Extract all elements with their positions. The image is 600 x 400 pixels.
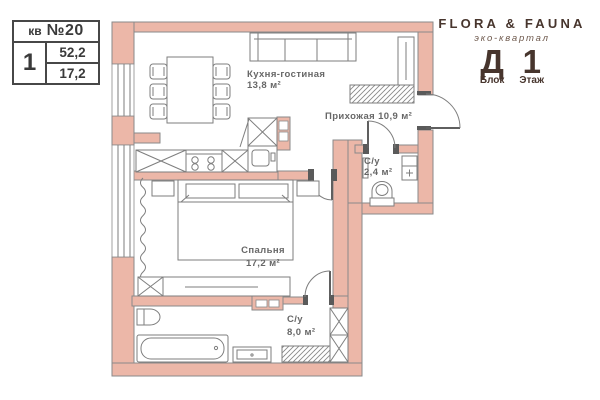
wall-segment xyxy=(132,296,252,306)
brand-subtitle: эко-квартал xyxy=(427,33,597,44)
nightstand-right xyxy=(297,181,319,196)
duct-shaft-kitchen xyxy=(277,117,290,150)
living-area: 17,2 xyxy=(47,64,98,83)
wall-segment xyxy=(348,203,362,363)
bathtub xyxy=(137,335,228,362)
bedroom-wardrobe xyxy=(138,277,290,296)
sink-small-bathroom xyxy=(402,156,417,180)
wall-segment xyxy=(418,130,433,205)
chair xyxy=(150,104,167,119)
wall-segment xyxy=(112,22,433,32)
vanity-sink xyxy=(233,347,271,362)
stove xyxy=(186,150,222,172)
pillow xyxy=(239,184,288,198)
fridge xyxy=(240,118,277,147)
floorplan-page: { "title_block": { "unit_label": "кв", "… xyxy=(0,0,600,400)
block-column: Д Блок xyxy=(480,47,505,86)
block-label: Блок xyxy=(480,75,505,86)
chair xyxy=(150,84,167,99)
window-kitchen xyxy=(112,64,134,116)
bathroom-small-area: 2,4 м² xyxy=(364,167,392,178)
wall-segment xyxy=(278,171,313,180)
bathroom-big-area: 8,0 м² xyxy=(287,327,315,338)
chair xyxy=(213,84,230,99)
pillow xyxy=(186,184,235,198)
block-floor: Д Блок 1 Этаж xyxy=(427,47,597,86)
toilet-big-bathroom xyxy=(137,309,160,325)
block-value: Д xyxy=(480,47,505,76)
brand-block: FLORA & FAUNA эко-квартал Д Блок 1 Этаж xyxy=(427,16,597,86)
nightstand-left xyxy=(152,181,174,196)
bathroom-small-label: С/у xyxy=(364,156,380,167)
sofa xyxy=(250,33,356,61)
brand-name: FLORA & FAUNA xyxy=(427,16,597,31)
entrance-door xyxy=(417,91,460,130)
toilet-small-bathroom xyxy=(370,182,394,207)
total-area: 52,2 xyxy=(47,43,98,64)
dining-table xyxy=(167,57,213,123)
curtain xyxy=(141,178,146,281)
apartment-label: кв xyxy=(28,24,41,38)
wall-segment xyxy=(134,133,160,143)
storage-cabinet xyxy=(330,308,348,362)
bedroom-area: 17,2 м² xyxy=(246,258,280,269)
chair xyxy=(213,104,230,119)
rooms-count: 1 xyxy=(14,43,47,83)
duct-shaft-bathroom xyxy=(252,296,283,310)
apartment-number-header: кв №20 xyxy=(14,22,98,43)
wall-segment xyxy=(112,363,362,376)
wall-segment xyxy=(112,257,134,376)
kitchen-living-area: 13,8 м² xyxy=(247,80,281,91)
bathroom-big-door xyxy=(303,271,334,305)
kitchen-living-label: Кухня-гостиная xyxy=(247,69,325,80)
chair xyxy=(150,64,167,79)
chair xyxy=(213,64,230,79)
tall-cabinet xyxy=(398,37,414,85)
wall-segment xyxy=(112,22,134,64)
hallway-label: Прихожая 10,9 м² xyxy=(325,111,412,122)
bathroom-big-label: С/у xyxy=(287,314,303,325)
kitchen-sink xyxy=(248,146,277,172)
bathroom-small-door xyxy=(363,121,399,154)
wall-segment xyxy=(396,145,418,153)
apartment-number: №20 xyxy=(47,22,84,40)
washing-machine xyxy=(282,346,330,362)
title-block: кв №20 1 52,2 17,2 xyxy=(12,20,100,85)
window-bedroom xyxy=(112,145,134,257)
floor-value: 1 xyxy=(519,47,544,76)
floor-column: 1 Этаж xyxy=(519,47,544,86)
bedroom-label: Спальня xyxy=(241,245,285,256)
wall-segment xyxy=(333,140,348,296)
wall-segment xyxy=(112,116,134,145)
floor-label: Этаж xyxy=(519,75,544,86)
hallway-wardrobe xyxy=(350,85,414,103)
